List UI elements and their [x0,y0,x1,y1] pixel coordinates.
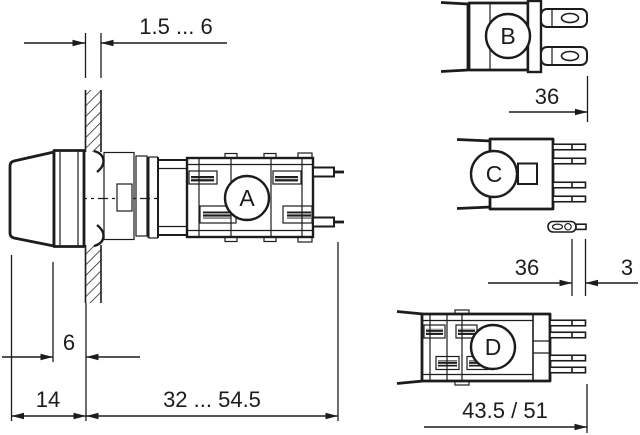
arrowhead [326,413,339,420]
dim-text-lens-to-panel: 6 [63,330,75,355]
break-line [441,70,468,72]
dimension-group-view-a: 6 14 32 ... 54.5 [2,242,338,421]
dimension-d-depth: 43.5 / 51 [424,384,587,433]
faston-terminal-bottom [541,47,587,65]
dim-text-b-depth: 36 [535,84,559,109]
break-line [457,207,491,209]
terminals-a [313,168,344,227]
dim-text-front-depth: 14 [36,387,60,412]
arrowhead [74,413,87,420]
arrowhead [575,424,588,431]
contact-spring [203,212,231,219]
dim-text-d-depth: 43.5 / 51 [462,398,548,423]
contact-spring [438,360,457,367]
rear-collar [149,157,188,238]
keying-notch [518,164,537,185]
dimension-c-pins: 36 3 [488,239,638,296]
indicator-light-dimension-drawing: A 1.5 ... 6 6 14 32 ... 54.5 [0,0,640,435]
break-line [397,312,423,315]
contact-spring [191,176,214,183]
view-label-a: A [239,185,255,211]
dim-text-c-pin-tip: 3 [621,255,633,280]
solder-pins-d [550,320,586,373]
view-b-faston-version: B [441,1,587,72]
arrowhead [575,109,588,116]
faston-terminal-top [541,9,587,27]
arrowhead [12,413,25,420]
contact-spring [458,329,475,336]
technical-drawing-page: A 1.5 ... 6 6 14 32 ... 54.5 [0,0,640,435]
view-c-pin-version: C [457,139,586,232]
contact-spring [275,176,298,183]
view-label-b: B [500,23,515,49]
dim-text-mounting-depth: 32 ... 54.5 [163,387,261,412]
view-a-side-section: A [10,90,344,303]
arrowhead [73,40,86,47]
dimension-panel-thickness: 1.5 ... 6 [24,14,227,78]
arrowhead [86,413,99,420]
break-line [457,140,491,142]
solder-pins-c [553,144,586,202]
clamp-ribs [104,153,147,240]
contact-spring [287,212,311,219]
lens-cap [10,152,54,246]
spring-clip-top [94,151,103,172]
arrowhead [41,354,54,361]
dimension-b-depth: 36 [509,76,588,122]
arrowhead [560,280,573,287]
spring-clip-bottom [94,225,103,246]
mounting-panel [86,90,102,303]
view-label-c: C [486,161,503,187]
view-label-d: D [485,334,502,360]
break-line [441,3,468,5]
dim-text-c-pin-depth: 36 [515,255,539,280]
arrowhead [86,354,99,361]
arrowhead [586,280,599,287]
break-line [397,381,423,384]
bezel [54,151,84,247]
dim-text-panel-thickness: 1.5 ... 6 [139,14,212,39]
view-d-long-version: D [397,310,586,385]
arrowhead [101,40,114,47]
terminal-detail-symbol [548,222,586,233]
contact-spring [426,329,443,336]
